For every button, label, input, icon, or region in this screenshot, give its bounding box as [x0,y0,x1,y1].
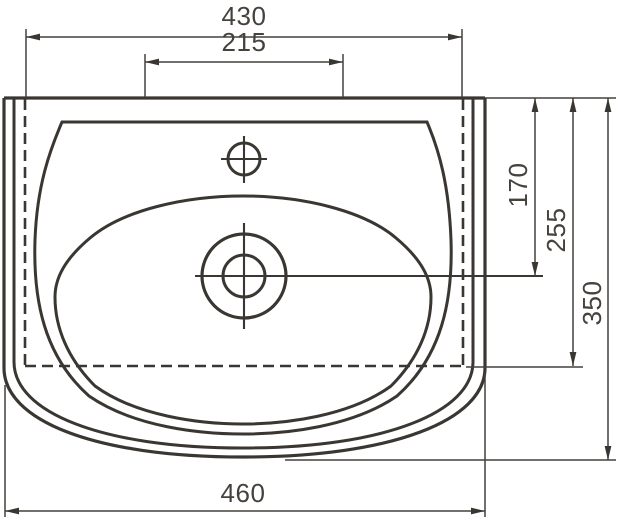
dimension-170: 170 [503,98,538,276]
dim-215-label: 215 [222,27,267,57]
dim-255-label: 255 [541,208,571,253]
dim-255-arrow-down [570,352,577,366]
dimension-460: 460 [5,372,485,517]
dim-460-label: 460 [221,478,266,508]
faucet-hole-mark [221,136,267,183]
dim-430-arrow-left [26,34,40,41]
dim-170-arrow-down [532,262,539,276]
dim-430-arrow-right [448,34,462,41]
dim-170-arrow-up [532,98,539,112]
drawing-canvas: 430 215 170 255 [0,0,618,520]
dim-215-arrow-left [145,59,159,66]
dim-350-label: 350 [577,281,607,326]
washbasin-technical-drawing: 430 215 170 255 [0,0,618,520]
dim-350-arrow-down [605,446,612,460]
dim-460-arrow-right [471,508,485,515]
drain-mark [195,223,543,329]
dim-255-arrow-up [570,98,577,112]
dim-170-label: 170 [503,163,533,208]
dim-215-arrow-right [329,59,343,66]
dim-350-arrow-up [605,98,612,112]
dim-460-arrow-left [5,508,19,515]
basin-body-outline [4,98,616,457]
